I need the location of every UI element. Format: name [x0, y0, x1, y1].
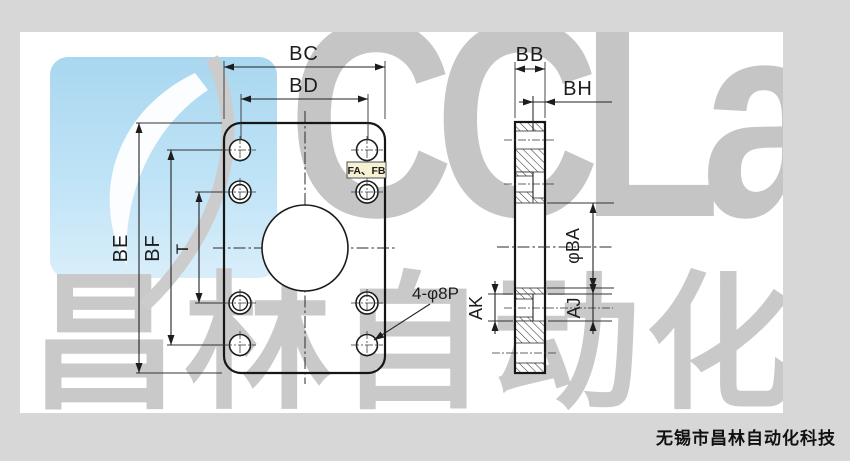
- dim-label-aj: AJ: [564, 297, 584, 318]
- dimension-bd: BD: [241, 75, 368, 140]
- dim-label-ak: AK: [466, 296, 486, 320]
- technical-drawing: BC BD BE BF: [0, 0, 850, 461]
- side-view: BB BH φBA: [466, 44, 614, 373]
- dim-label-t: T: [173, 244, 192, 254]
- company-name-footer: 无锡市昌林自动化科技: [656, 424, 836, 449]
- leader-line: [374, 304, 430, 340]
- dim-label-bf: BF: [142, 234, 164, 262]
- logo-swoosh: [110, 58, 228, 306]
- dim-label-ba: φBA: [563, 228, 583, 264]
- dimension-ak: AK: [466, 281, 513, 334]
- dim-label-bb: BB: [516, 44, 545, 66]
- dimension-aj: AJ: [548, 281, 612, 334]
- dimension-bh: BH: [519, 78, 612, 122]
- dimension-ba: φBA: [547, 203, 614, 288]
- screenshot-stage: CCLair 昌林自动化: [0, 0, 850, 461]
- holes-note-label: 4-φ8P: [412, 284, 459, 303]
- dim-label-bh: BH: [563, 78, 593, 100]
- dim-label-bd: BD: [289, 75, 319, 97]
- ports-tag: FA、FB: [347, 162, 386, 178]
- holes-callout: 4-φ8P: [374, 284, 459, 340]
- center-bore-circle: [262, 205, 348, 291]
- ports-tag-label: FA、FB: [348, 165, 386, 177]
- dimension-bb: BB: [515, 44, 545, 118]
- dim-label-be: BE: [110, 234, 132, 263]
- dim-label-bc: BC: [289, 43, 319, 65]
